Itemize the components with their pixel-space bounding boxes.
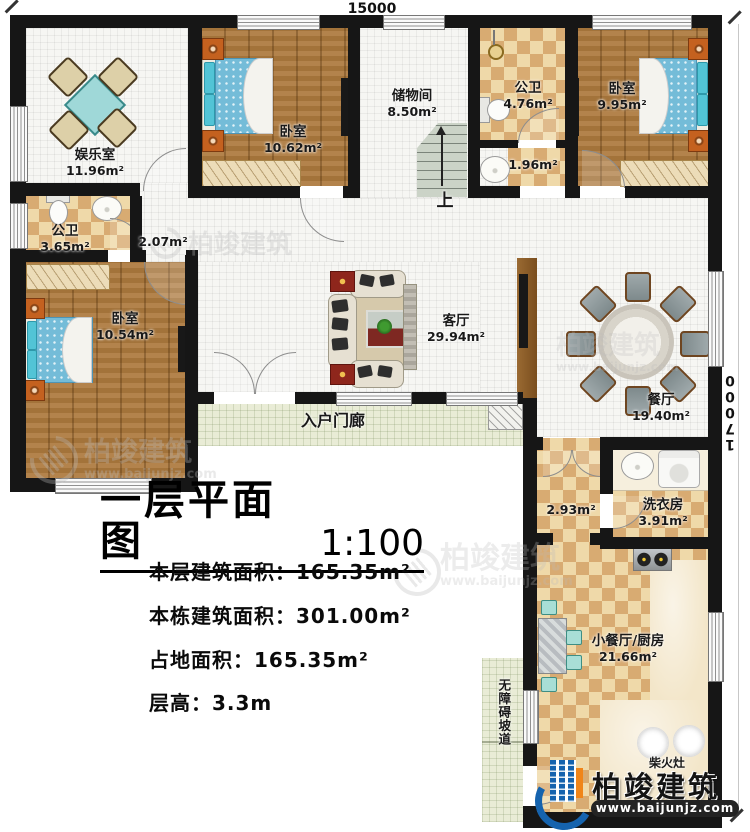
wall (600, 528, 613, 537)
label-bedroom-c: 卧室10.54m² (96, 312, 154, 342)
kitchen-table (538, 618, 567, 674)
bed-pillow (697, 62, 708, 94)
nightstand (24, 298, 45, 319)
sofa-pillow (377, 365, 393, 378)
window (446, 392, 518, 406)
wall (565, 186, 580, 198)
wall (625, 186, 708, 198)
wall (185, 255, 198, 492)
window (336, 392, 412, 406)
label-bath-top: 公卫4.76m² (503, 81, 552, 111)
wall (708, 15, 722, 828)
label-storage: 储物间8.50m² (387, 89, 436, 119)
nightstand (202, 130, 224, 152)
chair (625, 272, 651, 302)
wood-stove-pot (673, 725, 705, 757)
wall (537, 533, 553, 545)
wall (590, 533, 600, 545)
stat-floor-area: 本层建筑面积：165.35m² (149, 556, 411, 585)
sofa-pillow (331, 317, 348, 331)
wall (600, 437, 708, 450)
wall (478, 140, 518, 148)
wall (10, 15, 26, 492)
wardrobe (620, 160, 710, 187)
bed-blanket (62, 317, 92, 383)
label-bath-left: 公卫3.65m² (40, 224, 89, 254)
bed-pillow (204, 62, 215, 94)
wall (188, 28, 202, 190)
toilet (49, 200, 68, 225)
chair (566, 630, 582, 645)
sink (92, 196, 122, 221)
wardrobe (26, 264, 110, 290)
floor-plan: 娱乐室11.96m² 卧室10.62m² 公卫3.65m² 2.07m² 储物间… (0, 0, 750, 832)
label-stairs-up: 上 (437, 192, 454, 212)
wall (348, 28, 360, 198)
wall (565, 28, 578, 198)
wall (600, 537, 708, 549)
chair (541, 677, 557, 692)
label-wash-nook: 1.96m² (508, 158, 557, 172)
wall (468, 186, 520, 198)
company-logo: 柏竣建筑 www.baijunjz.com (533, 754, 738, 820)
window (708, 271, 724, 367)
nightstand (24, 380, 45, 401)
dimension-tick (5, 0, 19, 13)
wall (198, 392, 214, 404)
shower-pipe (493, 30, 495, 45)
label-dining: 餐厅19.40m² (632, 393, 690, 423)
label-corridor: 2.93m² (546, 503, 595, 517)
page-title: 一层平面图 (100, 480, 306, 562)
label-porch: 入户门廊 (301, 412, 365, 430)
nightstand (202, 38, 224, 60)
bed-pillow (697, 94, 708, 126)
logo-orange-bar (576, 768, 583, 798)
wall (523, 398, 537, 690)
stat-floor-height: 层高：3.3m (149, 687, 272, 716)
nightstand (688, 38, 710, 60)
stat-footprint-area: 占地面积：165.35m² (149, 644, 369, 673)
dimension-tick (728, 10, 742, 24)
label-kitchen: 小餐厅/厨房21.66m² (592, 634, 664, 664)
sofa-chaise (403, 284, 417, 370)
logo-building-icon (550, 760, 576, 802)
dimension-right: 17000 (722, 372, 738, 452)
bed-pillow (27, 321, 37, 350)
label-bedroom-b: 卧室9.95m² (597, 82, 646, 112)
bed-pillow (204, 94, 215, 126)
window (10, 106, 28, 182)
logo-url: www.baijunjz.com (591, 800, 739, 817)
dining-table (598, 304, 674, 380)
chair (541, 600, 557, 615)
wall (140, 250, 146, 262)
side-table (330, 364, 355, 385)
side-table (330, 271, 355, 292)
bed-blanket (243, 58, 273, 134)
label-bedroom-a: 卧室10.62m² (264, 125, 322, 155)
chair (680, 331, 710, 357)
stat-building-area: 本栋建筑面积：301.00m² (149, 600, 411, 629)
window (523, 690, 539, 744)
plant (377, 319, 392, 334)
chair (566, 331, 596, 357)
wall (188, 186, 300, 198)
washing-machine (658, 450, 700, 488)
window (592, 15, 692, 30)
window (237, 15, 320, 30)
wall (537, 437, 543, 450)
stairs-arrow-line (441, 134, 443, 186)
wall (295, 392, 338, 404)
tv (519, 274, 528, 348)
wall (410, 392, 446, 404)
porch-step-pad (488, 402, 523, 430)
label-ramp: 无障碍坡道 (496, 678, 510, 746)
window (10, 203, 28, 249)
label-laundry: 洗衣房3.91m² (638, 498, 687, 528)
label-living: 客厅29.94m² (427, 314, 485, 344)
dimension-line (738, 24, 739, 816)
sofa-arm (350, 270, 406, 298)
chair (566, 655, 582, 670)
label-entertainment: 娱乐室11.96m² (66, 148, 124, 178)
wall (26, 183, 140, 196)
shower-fixture (488, 44, 504, 60)
stairs-arrow-head (436, 126, 446, 135)
nightstand (688, 130, 710, 152)
label-hall-area: 2.07m² (138, 235, 187, 249)
dimension-top: 15000 (337, 1, 407, 17)
gas-stove (633, 548, 672, 571)
sofa-pillow (332, 337, 349, 350)
sink (621, 452, 654, 480)
window (708, 612, 724, 682)
sink (480, 156, 510, 183)
bed-pillow (27, 350, 37, 379)
wall (600, 450, 613, 494)
sofa-pillow (331, 299, 349, 313)
wall (468, 28, 480, 198)
wardrobe (202, 160, 301, 187)
window (383, 15, 445, 30)
wall (556, 140, 565, 148)
